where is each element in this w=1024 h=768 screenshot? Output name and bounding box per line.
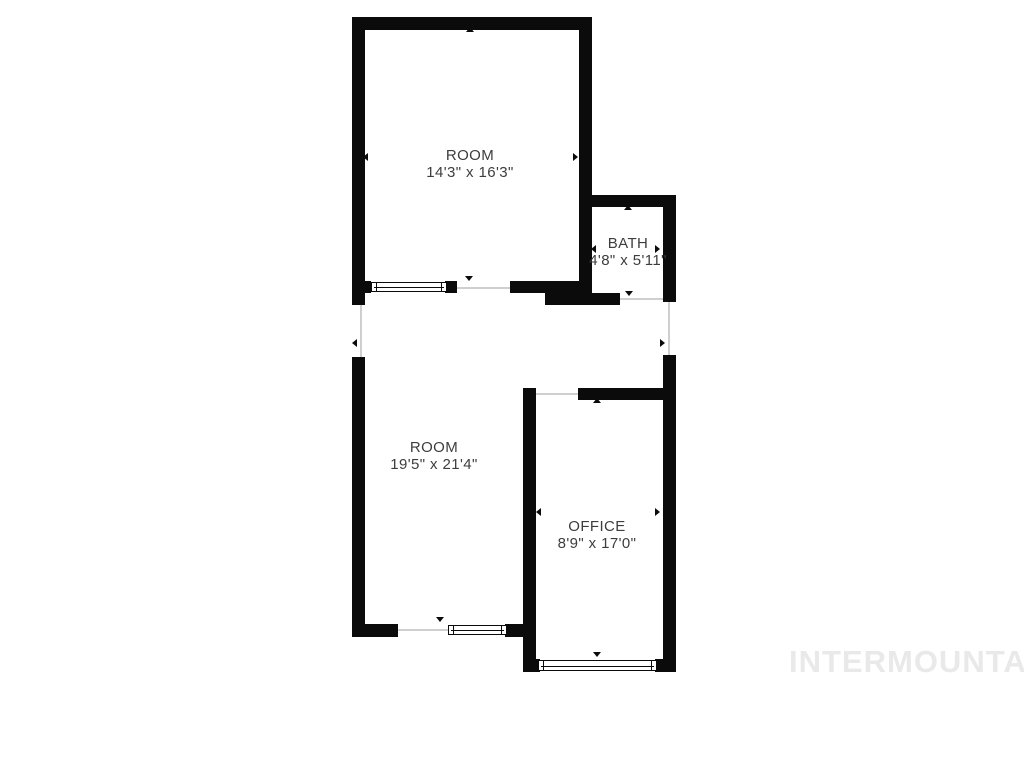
wall [523, 388, 536, 672]
wall [352, 281, 371, 293]
window [538, 660, 657, 671]
floorplan-canvas: ROOM 14'3" x 16'3" BATH 4'8" x 5'11" ROO… [0, 0, 1024, 768]
watermark: INTERMOUNTAIN [789, 644, 1024, 680]
measure-arrow-right [660, 339, 665, 347]
room-dimensions: 8'9" x 17'0" [558, 535, 637, 552]
window-detail [374, 287, 444, 288]
door-opening-line [457, 287, 510, 289]
window-detail [453, 626, 454, 634]
room-dimensions: 14'3" x 16'3" [426, 164, 513, 181]
measure-arrow-up [466, 27, 474, 32]
room-label-top-room: ROOM 14'3" x 16'3" [426, 147, 513, 181]
wall [545, 293, 620, 305]
measure-arrow-down [625, 291, 633, 296]
measure-arrow-left [363, 153, 368, 161]
window [448, 625, 507, 635]
measure-arrow-down [465, 276, 473, 281]
wall [352, 624, 398, 637]
window-detail [376, 283, 377, 291]
door-opening-line [398, 629, 448, 631]
wall [352, 357, 365, 637]
door-opening-line [668, 302, 670, 355]
door-opening-line [360, 305, 362, 357]
window-detail [543, 661, 544, 670]
room-name: BATH [589, 235, 667, 252]
room-name: ROOM [426, 147, 513, 164]
wall [663, 355, 676, 672]
measure-arrow-up [593, 398, 601, 403]
room-name: OFFICE [558, 518, 637, 535]
measure-arrow-down [593, 652, 601, 657]
wall [655, 659, 676, 672]
room-label-lower-room: ROOM 19'5" x 21'4" [390, 439, 477, 473]
room-dimensions: 4'8" x 5'11" [589, 252, 667, 269]
window-detail [541, 666, 654, 667]
door-opening-line [620, 298, 663, 300]
room-name: ROOM [390, 439, 477, 456]
window-detail [441, 283, 442, 291]
measure-arrow-right [655, 508, 660, 516]
measure-arrow-right [573, 153, 578, 161]
room-label-office: OFFICE 8'9" x 17'0" [558, 518, 637, 552]
window-detail [451, 630, 504, 631]
room-dimensions: 19'5" x 21'4" [390, 456, 477, 473]
measure-arrow-up [624, 205, 632, 210]
wall [510, 281, 592, 293]
measure-arrow-down [436, 617, 444, 622]
measure-arrow-left [536, 508, 541, 516]
measure-arrow-left [352, 339, 357, 347]
window [371, 282, 447, 292]
door-opening-line [536, 393, 578, 395]
wall [505, 624, 523, 637]
wall [352, 17, 365, 305]
room-label-bath: BATH 4'8" x 5'11" [589, 235, 667, 269]
window-detail [651, 661, 652, 670]
window-detail [501, 626, 502, 634]
